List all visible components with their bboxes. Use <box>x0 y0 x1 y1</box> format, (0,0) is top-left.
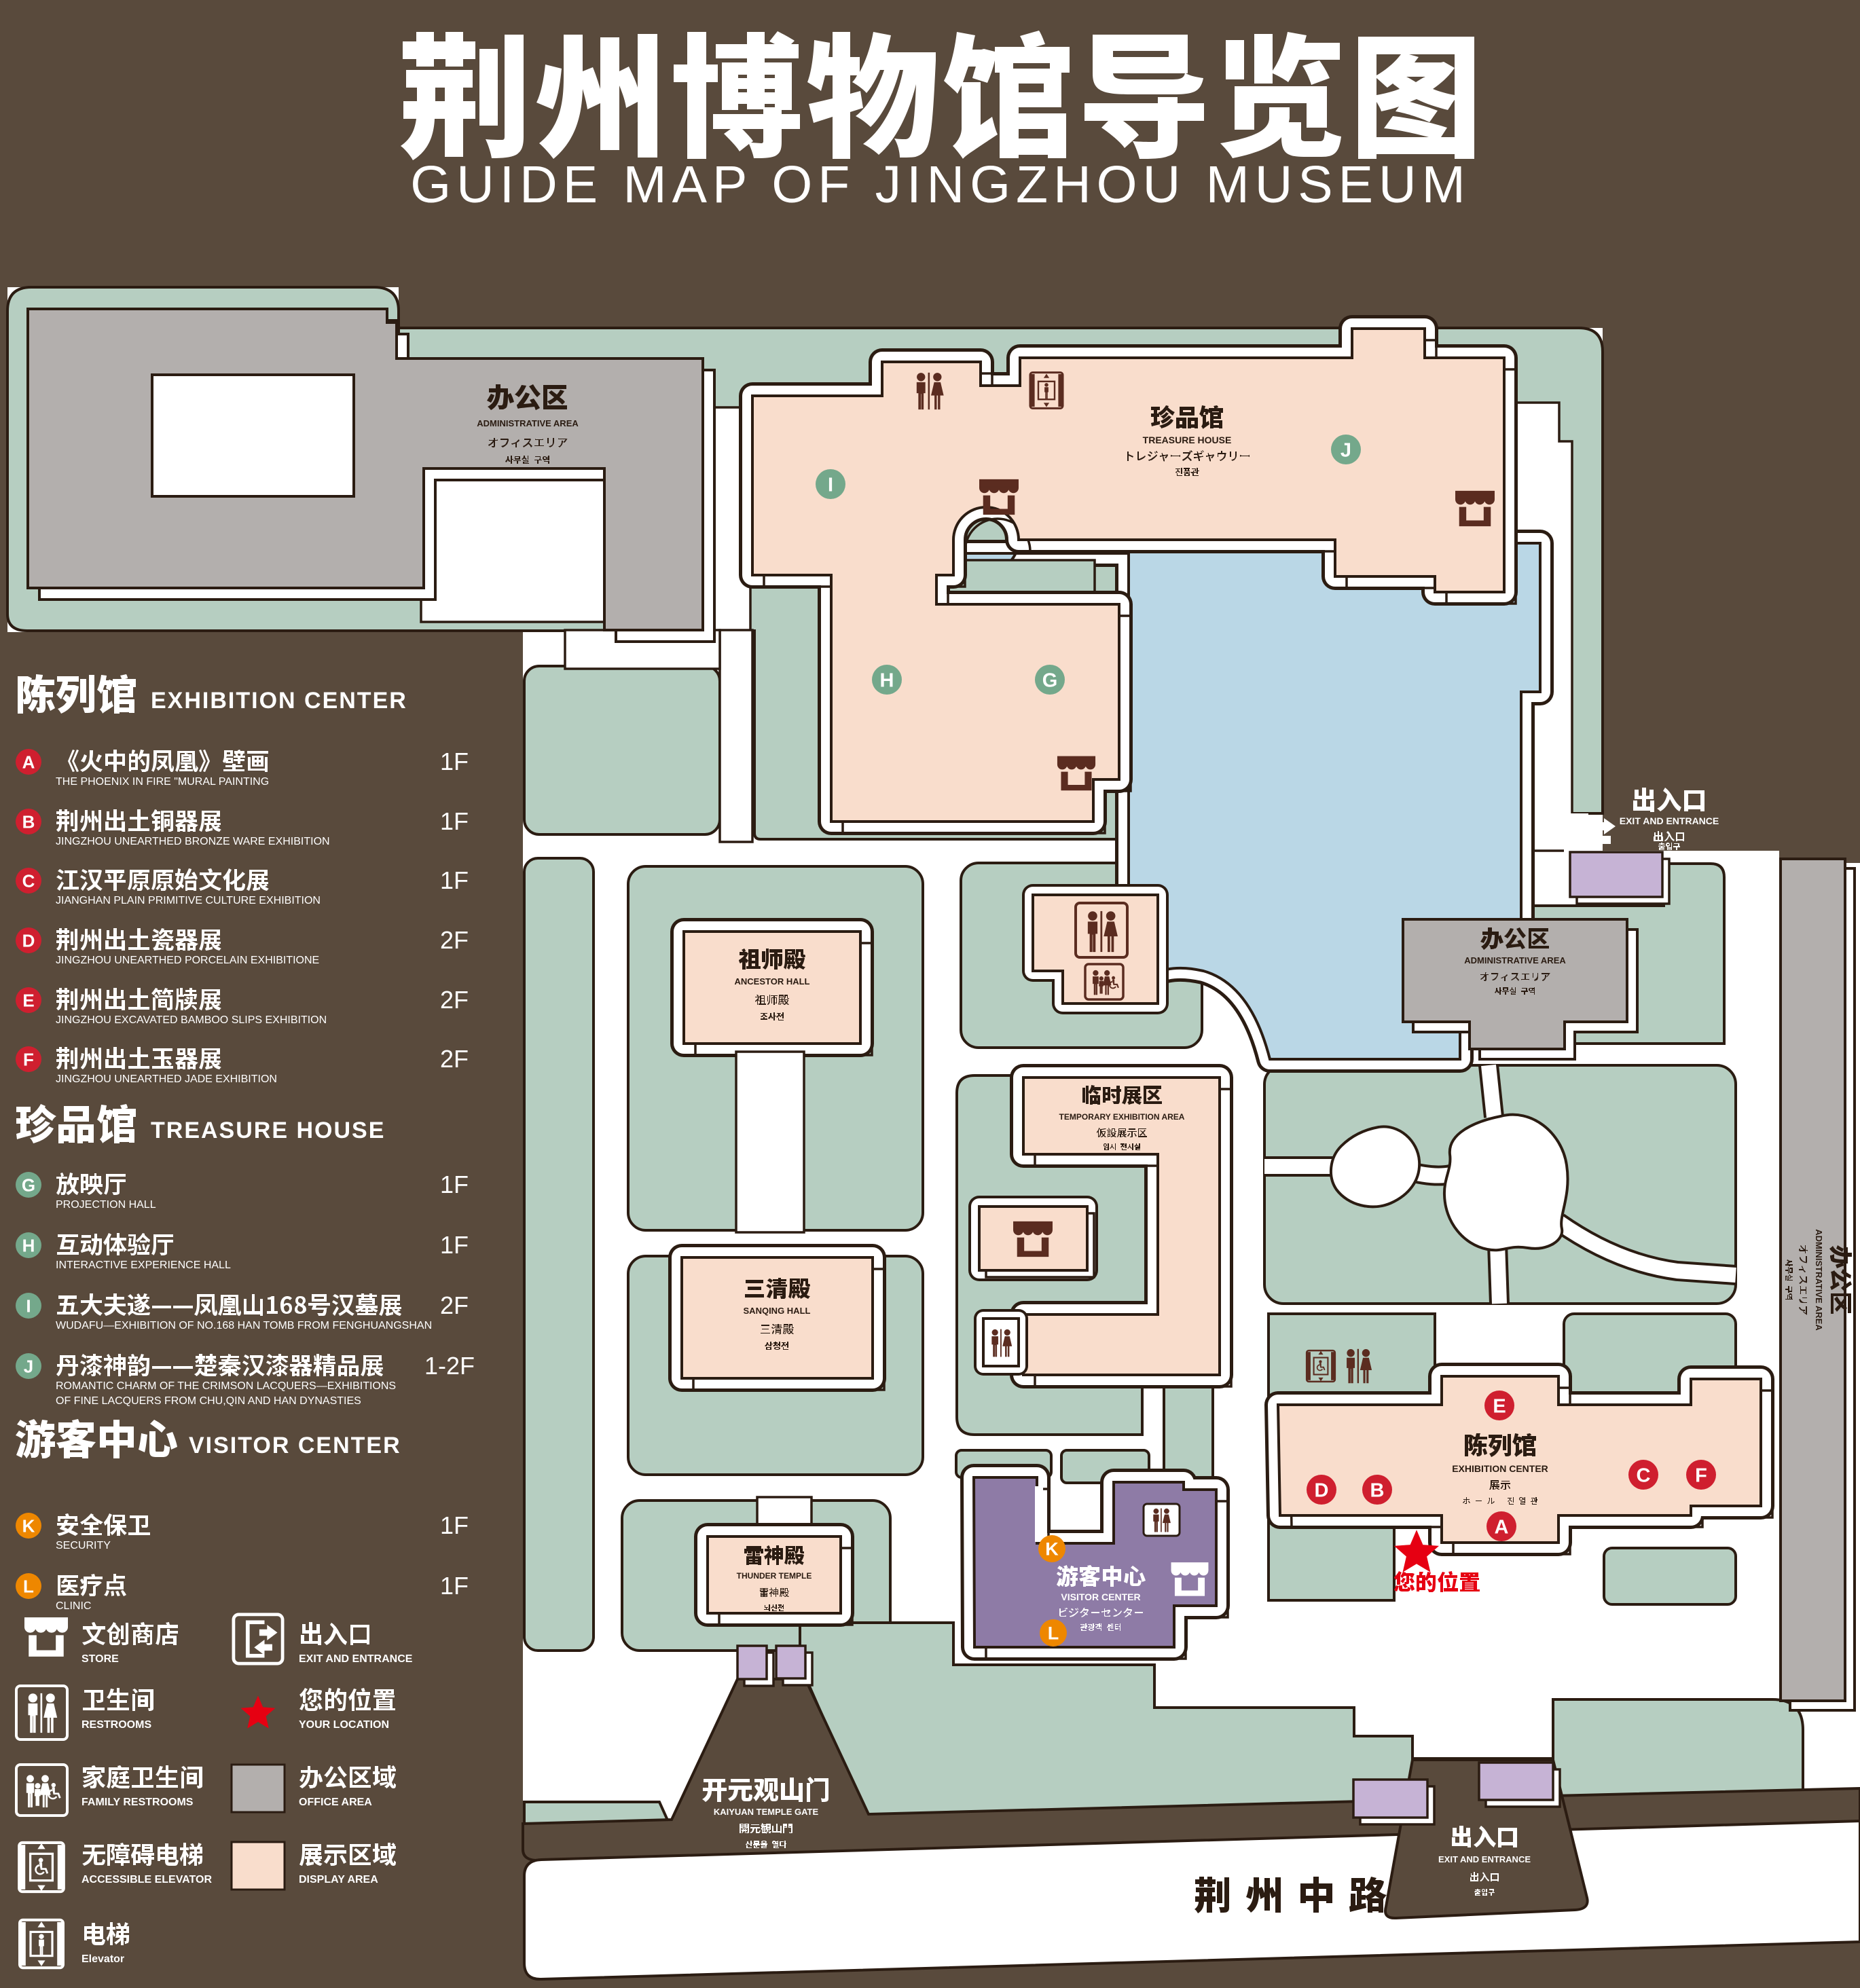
svg-text:JINGZHOU UNEARTHED BRONZE WARE: JINGZHOU UNEARTHED BRONZE WARE EXHIBITIO… <box>56 836 330 847</box>
svg-text:EXHIBITION CENTER: EXHIBITION CENTER <box>1452 1463 1548 1474</box>
svg-text:STORE: STORE <box>81 1653 119 1665</box>
svg-text:JIANGHAN PLAIN PRIMITIVE CULTU: JIANGHAN PLAIN PRIMITIVE CULTURE EXHIBIT… <box>56 895 321 906</box>
svg-text:WUDAFU—EXHIBITION OF NO.168 HA: WUDAFU—EXHIBITION OF NO.168 HAN TOMB FRO… <box>56 1320 432 1331</box>
svg-text:K: K <box>22 1515 35 1536</box>
svg-text:L: L <box>1048 1623 1059 1644</box>
svg-text:G: G <box>22 1175 35 1195</box>
svg-text:JINGZHOU UNEARTHED PORCELAIN E: JINGZHOU UNEARTHED PORCELAIN EXHIBITIONE <box>56 955 319 966</box>
svg-text:2F: 2F <box>440 926 469 954</box>
svg-text:J: J <box>1341 439 1351 461</box>
svg-text:F: F <box>1695 1465 1707 1486</box>
svg-text:JINGZHOU UNEARTHED JADE EXHIBI: JINGZHOU UNEARTHED JADE EXHIBITION <box>56 1073 277 1085</box>
svg-text:DISPLAY AREA: DISPLAY AREA <box>299 1874 378 1885</box>
svg-text:CLINIC: CLINIC <box>56 1600 91 1612</box>
svg-text:1F: 1F <box>440 1231 469 1259</box>
svg-text:FAMILY RESTROOMS: FAMILY RESTROOMS <box>81 1797 194 1808</box>
svg-text:1F: 1F <box>440 1171 469 1198</box>
svg-text:ROMANTIC CHARM OF THE CRIMSON: ROMANTIC CHARM OF THE CRIMSON LACQUERS—E… <box>56 1380 396 1392</box>
svg-text:VISITOR CENTER: VISITOR CENTER <box>189 1433 401 1458</box>
svg-text:ANCESTOR HALL: ANCESTOR HALL <box>735 976 810 987</box>
svg-text:D: D <box>1315 1479 1329 1501</box>
svg-text:OFFICE AREA: OFFICE AREA <box>299 1797 372 1808</box>
svg-text:2F: 2F <box>440 986 469 1014</box>
svg-text:2F: 2F <box>440 1045 469 1073</box>
svg-text:D: D <box>22 930 35 951</box>
svg-text:ACCESSIBLE ELEVATOR: ACCESSIBLE ELEVATOR <box>81 1874 212 1885</box>
svg-text:A: A <box>1495 1516 1509 1538</box>
svg-text:A: A <box>22 752 35 772</box>
svg-text:EXIT AND ENTRANCE: EXIT AND ENTRANCE <box>1620 815 1719 826</box>
svg-text:KAIYUAN TEMPLE GATE: KAIYUAN TEMPLE GATE <box>714 1807 819 1817</box>
svg-text:JINGZHOU EXCAVATED BAMBOO SLIP: JINGZHOU EXCAVATED BAMBOO SLIPS EXHIBITI… <box>56 1014 327 1026</box>
svg-text:EXIT AND ENTRANCE: EXIT AND ENTRANCE <box>299 1653 413 1665</box>
svg-text:Elevator: Elevator <box>81 1953 124 1965</box>
svg-text:RESTROOMS: RESTROOMS <box>81 1719 151 1731</box>
svg-text:E: E <box>22 990 34 1010</box>
svg-text:1F: 1F <box>440 1511 469 1539</box>
svg-text:ADMINISTRATIVE AREA: ADMINISTRATIVE AREA <box>1464 955 1566 965</box>
svg-text:THUNDER TEMPLE: THUNDER TEMPLE <box>737 1571 812 1581</box>
svg-text:THE PHOENIX IN FIRE "MURAL PAI: THE PHOENIX IN FIRE "MURAL PAINTING <box>56 776 269 788</box>
svg-text:TREASURE HOUSE: TREASURE HOUSE <box>151 1118 385 1143</box>
svg-text:L: L <box>23 1576 34 1596</box>
svg-text:I: I <box>26 1295 31 1316</box>
svg-text:TREASURE HOUSE: TREASURE HOUSE <box>1143 435 1232 445</box>
svg-text:ADMINISTRATIVE AREA: ADMINISTRATIVE AREA <box>477 418 579 428</box>
svg-text:VISITOR CENTER: VISITOR CENTER <box>1061 1591 1140 1602</box>
svg-text:YOUR LOCATION: YOUR LOCATION <box>299 1719 389 1731</box>
svg-text:EXHIBITION CENTER: EXHIBITION CENTER <box>151 688 407 714</box>
svg-text:F: F <box>23 1049 34 1069</box>
svg-text:1F: 1F <box>440 1572 469 1600</box>
svg-text:ADMINISTRATIVE AREA: ADMINISTRATIVE AREA <box>1814 1229 1824 1331</box>
svg-text:2F: 2F <box>440 1291 469 1319</box>
svg-text:1F: 1F <box>440 807 469 835</box>
svg-text:1F: 1F <box>440 748 469 775</box>
svg-text:SANQING HALL: SANQING HALL <box>744 1306 811 1316</box>
svg-text:B: B <box>22 811 35 832</box>
svg-text:E: E <box>1493 1395 1506 1417</box>
svg-text:C: C <box>1637 1465 1651 1486</box>
svg-text:SECURITY: SECURITY <box>56 1540 111 1551</box>
svg-text:INTERACTIVE EXPERIENCE HALL: INTERACTIVE EXPERIENCE HALL <box>56 1259 231 1271</box>
svg-text:1-2F: 1-2F <box>424 1352 475 1380</box>
svg-text:GUIDE MAP OF JINGZHOU MUSEUM: GUIDE MAP OF JINGZHOU MUSEUM <box>410 155 1471 214</box>
svg-text:PROJECTION HALL: PROJECTION HALL <box>56 1199 156 1211</box>
svg-text:C: C <box>22 870 35 891</box>
svg-text:G: G <box>1042 669 1058 691</box>
svg-text:I: I <box>828 474 833 496</box>
svg-text:K: K <box>1045 1539 1059 1560</box>
svg-text:EXIT AND ENTRANCE: EXIT AND ENTRANCE <box>1438 1854 1531 1864</box>
svg-text:OF FINE LACQUERS FROM CHU,QIN: OF FINE LACQUERS FROM CHU,QIN AND HAN DY… <box>56 1395 361 1407</box>
svg-text:TEMPORARY EXHIBITION AREA: TEMPORARY EXHIBITION AREA <box>1059 1112 1185 1122</box>
svg-text:B: B <box>1370 1479 1385 1501</box>
svg-text:1F: 1F <box>440 866 469 894</box>
svg-text:H: H <box>880 669 894 691</box>
svg-text:H: H <box>22 1235 35 1255</box>
svg-text:J: J <box>24 1356 33 1376</box>
